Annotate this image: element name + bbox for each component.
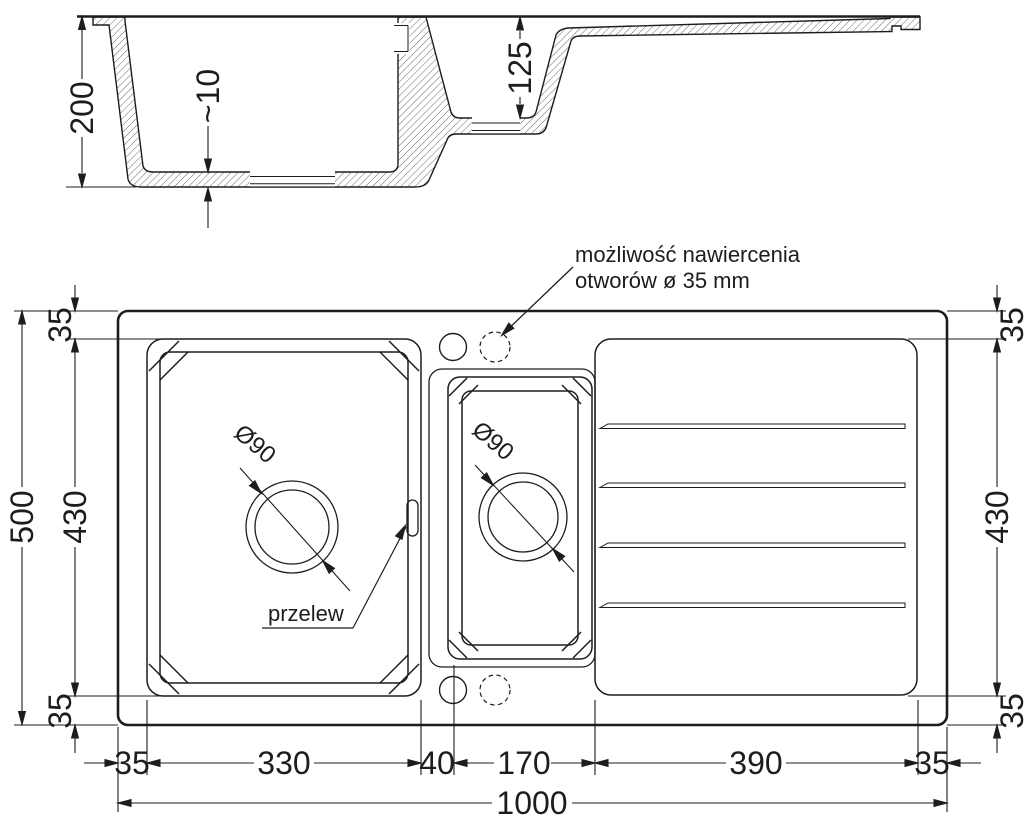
deck-plateau	[429, 369, 595, 667]
dim-label-35-top-left: 35	[42, 307, 78, 343]
dim-label-35-bottom-left: 35	[42, 693, 78, 729]
dim-label-125: 125	[502, 41, 538, 94]
sink-outline	[118, 311, 947, 725]
dim-label-430-left: 430	[57, 490, 93, 543]
dim-label-35-top-right: 35	[994, 307, 1024, 343]
drainer-board	[595, 339, 917, 695]
dim-label-500: 500	[4, 490, 40, 543]
dim-label-200: 200	[64, 81, 100, 134]
dim-bottom-thickness: ~10	[190, 69, 226, 228]
dim-label-1000: 1000	[496, 785, 567, 821]
optional-hole-top	[480, 332, 510, 362]
small-drain: Ø90	[467, 416, 574, 572]
drainer-ribs	[600, 424, 905, 608]
dims-bottom: 35 330 40 170 390 35 1000	[84, 665, 981, 821]
plan-view: Ø90 Ø90 możliwość nawiercenia otworów ø …	[4, 242, 1024, 821]
dim-label-35-right-margin: 35	[914, 745, 950, 781]
dim-label-thickness: ~10	[190, 69, 226, 123]
optional-hole-bottom	[480, 675, 510, 705]
main-bowl-drain-recess	[250, 171, 335, 187]
faucet-hole-bottom	[440, 677, 467, 704]
drilling-note: możliwość nawiercenia otworów ø 35 mm	[500, 242, 801, 337]
dim-label-430-right: 430	[979, 490, 1015, 543]
section-view: 200 ~10 125	[64, 17, 920, 229]
dim-label-390: 390	[729, 745, 782, 781]
overflow-label: przelew	[268, 601, 344, 626]
small-bowl	[448, 377, 592, 659]
sink-technical-drawing: 200 ~10 125	[0, 0, 1024, 827]
small-bowl-drain-recess	[472, 117, 520, 134]
dims-left: 500 430 35 35	[4, 285, 160, 753]
dim-label-330: 330	[257, 745, 310, 781]
note-line2: otworów ø 35 mm	[575, 268, 750, 293]
main-drain: Ø90	[229, 419, 350, 591]
overflow-callout: przelew	[262, 524, 408, 628]
overflow-notch-section	[394, 23, 410, 54]
small-drain-label: Ø90	[467, 416, 519, 466]
drawing-canvas: 200 ~10 125	[0, 0, 1024, 827]
note-line1: możliwość nawiercenia	[575, 242, 801, 267]
dim-label-35-left-margin: 35	[114, 745, 150, 781]
dims-right: 430 35 35	[908, 285, 1024, 753]
dim-small-bowl-depth-125: 125	[502, 17, 538, 118]
faucet-hole-top	[440, 334, 467, 361]
main-drain-label: Ø90	[229, 419, 281, 469]
dim-label-170: 170	[497, 745, 550, 781]
dim-label-35-bottom-right: 35	[994, 693, 1024, 729]
dim-label-40: 40	[419, 745, 455, 781]
